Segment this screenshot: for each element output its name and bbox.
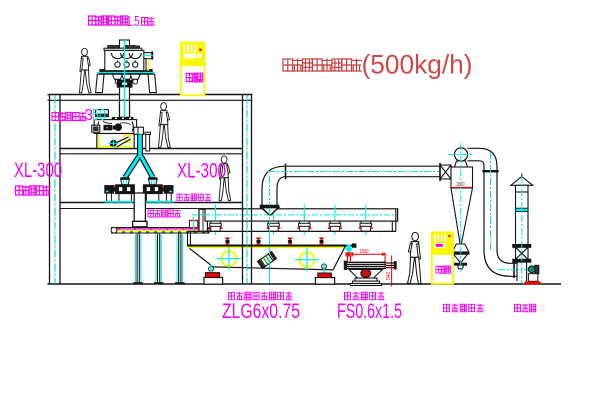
svg-text:XL-300: XL-300 [177, 160, 226, 183]
svg-text:(500kg/h): (500kg/h) [362, 50, 473, 80]
svg-text:1.5: 1.5 [127, 13, 140, 30]
svg-text:ZLG6x0.75: ZLG6x0.75 [222, 299, 300, 323]
svg-text:1500: 1500 [360, 249, 369, 255]
svg-text:FS0.6x1.5: FS0.6x1.5 [337, 299, 402, 323]
svg-text:XL-300: XL-300 [14, 159, 62, 182]
svg-text:50: 50 [92, 107, 106, 124]
svg-text:540: 540 [386, 271, 392, 280]
